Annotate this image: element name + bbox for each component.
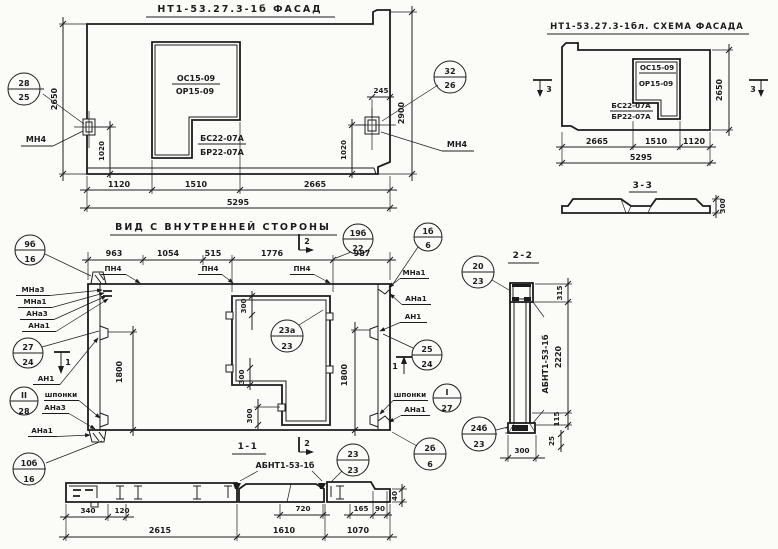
anchor-label-mn4-right: МН4 bbox=[381, 132, 474, 151]
callout-leader bbox=[392, 432, 417, 446]
dim-245: 245 bbox=[373, 86, 388, 95]
section-3-3-title: 3-3 bbox=[633, 181, 654, 191]
callout-top: 25 bbox=[421, 345, 433, 354]
label-shponki: шпонки bbox=[45, 390, 77, 399]
facade-window-block-label: ОР15-09 bbox=[176, 87, 215, 96]
label-mna1: МНа1 bbox=[23, 297, 46, 306]
inner-view: ВИД С ВНУТРЕННЕЙ СТОРОНЫ 300 300 300 23а… bbox=[10, 221, 461, 485]
facade-title: НТ1-53.27.3-1б ФАСАД bbox=[157, 4, 322, 15]
inner-bottom-left-tab bbox=[89, 430, 106, 442]
drawing-canvas: НТ1-53.27.3-1б ФАСАД ОС15-09 ОР15-09 БС2… bbox=[0, 0, 778, 549]
label-pn4: ПН4 bbox=[293, 264, 310, 273]
dim-1020-right: 1020 bbox=[339, 140, 348, 160]
dim-1054: 1054 bbox=[157, 249, 180, 258]
section-1-1-title: 1-1 bbox=[238, 442, 259, 452]
inner-anchor-cluster bbox=[103, 291, 112, 296]
scheme-sill-label: БР22-07А bbox=[611, 112, 651, 121]
inner-keys-right bbox=[370, 326, 378, 427]
facade-view: НТ1-53.27.3-1б ФАСАД ОС15-09 ОР15-09 БС2… bbox=[8, 4, 474, 212]
anchor-label-mn4-left: МН4 bbox=[21, 131, 83, 146]
dim-1120: 1120 bbox=[108, 180, 131, 189]
callout-23-23: 23 23 bbox=[331, 444, 369, 482]
callout-top: 23 bbox=[347, 450, 358, 459]
dim-2665: 2665 bbox=[304, 180, 327, 189]
callout-leader bbox=[331, 471, 342, 482]
label-ana1: АНа1 bbox=[404, 405, 425, 414]
callout-27-24: 27 24 bbox=[13, 331, 99, 368]
callout-leader bbox=[45, 254, 91, 276]
dim-1610: 1610 bbox=[273, 526, 296, 535]
label-mn4: МН4 bbox=[26, 135, 47, 144]
callout-leader bbox=[391, 247, 418, 287]
section-1-1: 1-1 АБНТ1-53-1б 340 120 720 165 90 2615 … bbox=[59, 442, 407, 541]
callout-bottom: 16 bbox=[23, 475, 35, 484]
label-shponki: шпонки bbox=[394, 390, 426, 399]
dim-40: 40 bbox=[390, 491, 399, 501]
dim-120: 120 bbox=[114, 506, 129, 515]
dim-ticks bbox=[247, 293, 261, 428]
facade-dimensions: 2650 2900 245 1020 1020 1120 1510 2665 5… bbox=[50, 6, 417, 212]
facade-sill-block-label: БР22-07А bbox=[200, 148, 245, 157]
callout-top: 24б bbox=[471, 423, 488, 433]
callout-II-28: II 28 bbox=[10, 387, 38, 416]
inner-title: ВИД С ВНУТРЕННЕЙ СТОРОНЫ bbox=[115, 221, 331, 233]
callout-top: I bbox=[446, 388, 449, 397]
callout-bottom: 25 bbox=[18, 93, 30, 102]
label-ana1: АНа1 bbox=[31, 426, 52, 435]
label-mna1: МНа1 bbox=[402, 268, 425, 277]
callout-bottom: 23 bbox=[473, 440, 484, 449]
dim-300: 300 bbox=[237, 369, 246, 384]
dim-720: 720 bbox=[295, 504, 310, 513]
callout-leader bbox=[492, 280, 509, 290]
callout-bottom: 28 bbox=[18, 407, 30, 416]
dim-1020-left: 1020 bbox=[97, 141, 106, 161]
callout-top: 28 bbox=[18, 79, 30, 88]
callout-bottom: 27 bbox=[441, 404, 452, 413]
callout-top: 1б bbox=[422, 226, 434, 236]
callout-32-26: 32 26 bbox=[382, 61, 466, 121]
dim-340: 340 bbox=[80, 506, 95, 515]
mark-3-label: 3 bbox=[546, 85, 552, 94]
dim-300: 300 bbox=[514, 446, 529, 455]
scheme-window-label: ОС15-09 bbox=[640, 63, 674, 72]
callout-bottom: 23 bbox=[472, 277, 483, 286]
section-mark-1-right: 1 bbox=[392, 356, 412, 374]
dim-515: 515 bbox=[205, 249, 222, 258]
label-ana3: АНа3 bbox=[26, 309, 47, 318]
dim-ticks bbox=[505, 281, 571, 461]
dim-300: 300 bbox=[239, 298, 248, 313]
dim-963: 963 bbox=[106, 249, 123, 258]
dim-2650: 2650 bbox=[715, 78, 724, 101]
label-an1: АН1 bbox=[38, 374, 55, 383]
mark-1-label: 1 bbox=[392, 362, 398, 371]
label-an1: АН1 bbox=[405, 312, 422, 321]
callout-leader bbox=[299, 310, 323, 325]
callout-top: 2б bbox=[424, 443, 436, 453]
callout-bottom: 22 bbox=[352, 244, 363, 253]
callout-top: II bbox=[21, 391, 27, 400]
dim-1800: 1800 bbox=[340, 363, 349, 386]
dim-2615: 2615 bbox=[149, 526, 172, 535]
drawing-sheet: НТ1-53.27.3-1б ФАСАД ОС15-09 ОР15-09 БС2… bbox=[0, 0, 778, 549]
dim-2220: 2220 bbox=[554, 345, 563, 368]
callout-23a-23: 23а 23 bbox=[271, 310, 323, 352]
dim-1510: 1510 bbox=[645, 137, 668, 146]
section-mark-1-left: 1 bbox=[54, 352, 71, 374]
inner-top-left-tab bbox=[91, 272, 106, 284]
section-2-2-profile bbox=[505, 283, 535, 433]
dim-5295: 5295 bbox=[227, 198, 250, 207]
inner-top-dims: 963 1054 515 1776 987 bbox=[82, 249, 396, 292]
callout-leader bbox=[336, 252, 351, 258]
scheme-sill-label: БС22-07А bbox=[611, 101, 651, 110]
section-3-3: 3-3 300 bbox=[562, 181, 727, 218]
callout-bottom: 24 bbox=[421, 360, 433, 369]
dim-90: 90 bbox=[375, 504, 385, 513]
section-1-1-part-label: АБНТ1-53-1б bbox=[256, 460, 315, 470]
callout-leader bbox=[496, 427, 508, 430]
dim-2665: 2665 bbox=[586, 137, 609, 146]
section-3-3-profile bbox=[562, 199, 710, 213]
inner-window-dims: 300 300 300 bbox=[237, 291, 280, 429]
section-mark-3-right: 3 bbox=[749, 80, 768, 97]
section-2-2: 2-2 АБНТ1-53-1б 315 2220 115 25 300 20 2… bbox=[462, 251, 572, 462]
label-mn4: МН4 bbox=[447, 140, 468, 149]
callout-top: 19б bbox=[350, 228, 367, 238]
section-1-1-profile bbox=[66, 482, 390, 507]
section-1-1-dims: 340 120 720 165 90 2615 1610 1070 40 bbox=[59, 484, 407, 541]
inner-keys-left bbox=[100, 326, 108, 427]
label-ana1-bottom: АНа1 bbox=[28, 426, 90, 437]
mark-2-label: 2 bbox=[304, 439, 310, 448]
callout-I-27: I 27 bbox=[433, 384, 461, 413]
section-mark-2-bottom: 2 bbox=[299, 437, 314, 455]
pn4-labels: ПН4 ПН4 ПН4 bbox=[101, 264, 330, 283]
mark-1-label: 1 bbox=[65, 358, 71, 367]
dim-5295: 5295 bbox=[630, 153, 653, 162]
callout-24b-23: 24б 23 bbox=[462, 417, 508, 451]
dim-2900: 2900 bbox=[397, 101, 406, 124]
scheme-window-label: ОР15-09 bbox=[639, 79, 673, 88]
scheme-title: НТ1-53.27.3-1бл. СХЕМА ФАСАДА bbox=[550, 21, 744, 32]
mark-3-label: 3 bbox=[750, 85, 756, 94]
callout-leader bbox=[42, 331, 99, 347]
dim-1120: 1120 bbox=[683, 137, 706, 146]
dim-1800: 1800 bbox=[115, 360, 124, 383]
callout-bottom: 16 bbox=[24, 255, 36, 264]
callout-bottom: 24 bbox=[22, 358, 34, 367]
dim-2650: 2650 bbox=[50, 87, 59, 110]
facade-scheme-view: НТ1-53.27.3-1бл. СХЕМА ФАСАДА ОС15-09 ОР… bbox=[533, 21, 768, 218]
callout-leader bbox=[383, 334, 413, 348]
callout-top: 32 bbox=[444, 67, 455, 76]
dim-1510: 1510 bbox=[185, 180, 208, 189]
dim-165: 165 bbox=[353, 504, 368, 513]
label-pn4: ПН4 bbox=[201, 264, 218, 273]
dim-1776: 1776 bbox=[261, 249, 284, 258]
callout-top: 23а bbox=[279, 326, 296, 335]
callout-2b-6: 2б 6 bbox=[392, 432, 446, 470]
callout-20-23: 20 23 bbox=[462, 256, 509, 290]
callout-1b-6: 1б 6 bbox=[391, 223, 442, 287]
callout-top: 20 bbox=[472, 262, 484, 271]
inner-corner-notches bbox=[378, 289, 390, 421]
callout-bottom: 23 bbox=[347, 466, 358, 475]
callout-9b-16: 9б 16 bbox=[15, 235, 91, 276]
callout-leader bbox=[46, 441, 102, 463]
mark-2-label: 2 bbox=[304, 237, 310, 246]
callout-top: 27 bbox=[22, 343, 33, 352]
dim-300: 300 bbox=[718, 198, 727, 213]
dim-115: 115 bbox=[552, 411, 561, 426]
callout-28-25: 28 25 bbox=[8, 73, 84, 124]
label-ana1: АНа1 bbox=[28, 321, 49, 330]
part-label-leaders bbox=[240, 471, 322, 481]
label-mna3: МНа3 bbox=[21, 285, 44, 294]
callout-top: 9б bbox=[24, 239, 36, 249]
section-2-2-part-label: АБНТ1-53-1б bbox=[540, 334, 550, 393]
callout-bottom: 6 bbox=[425, 241, 431, 250]
facade-window-block-label: ОС15-09 bbox=[177, 74, 216, 83]
callout-bottom: 26 bbox=[444, 81, 456, 90]
dim-315: 315 bbox=[555, 285, 564, 300]
callout-top: 10б bbox=[21, 458, 38, 468]
dim-25: 25 bbox=[547, 436, 556, 446]
callout-bottom: 6 bbox=[427, 460, 433, 469]
inner-left-labels: МНа3 МНа1 АНа3 АНа1 bbox=[16, 285, 108, 332]
section-2-2-title: 2-2 bbox=[513, 251, 534, 261]
section-mark-2-top: 2 bbox=[299, 234, 314, 253]
dim-300: 300 bbox=[245, 408, 254, 423]
label-ana1: АНа1 bbox=[405, 294, 426, 303]
dim-1070: 1070 bbox=[347, 526, 370, 535]
facade-sill-block-label: БС22-07А bbox=[200, 134, 245, 143]
label-ana3: АНа3 bbox=[44, 403, 65, 412]
label-pn4: ПН4 bbox=[104, 264, 121, 273]
callout-10b-16: 10б 16 bbox=[13, 441, 102, 485]
section-mark-3-left: 3 bbox=[533, 80, 552, 97]
callout-bottom: 23 bbox=[281, 342, 292, 351]
